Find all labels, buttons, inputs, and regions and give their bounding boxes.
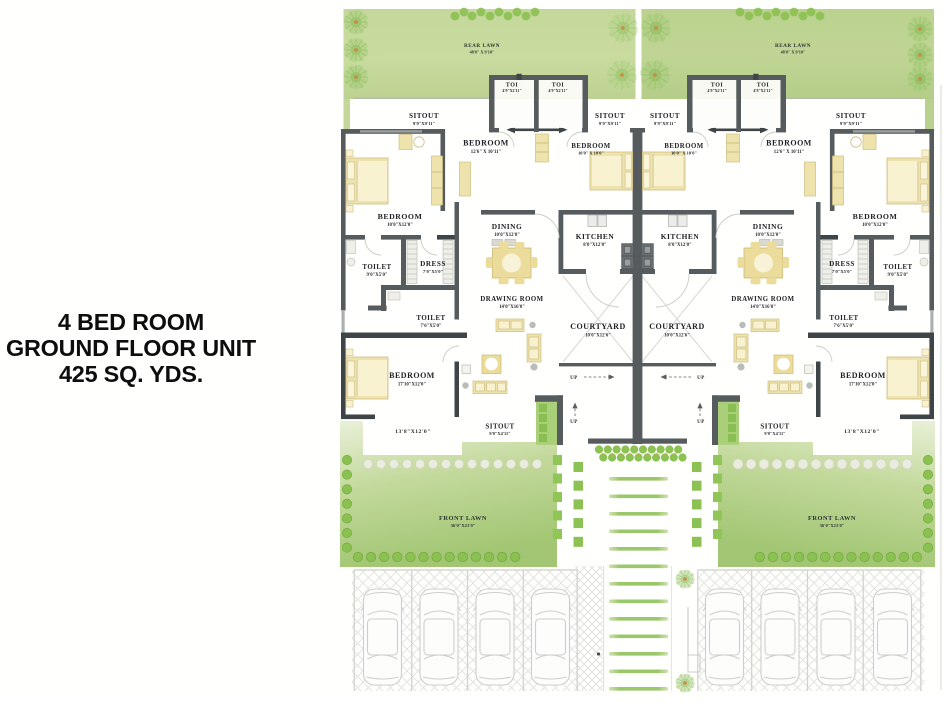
svg-text:DRESS: DRESS [420,260,446,268]
svg-text:10'0" X 10'0": 10'0" X 10'0" [671,151,697,156]
svg-text:GROUND FLOOR UNIT: GROUND FLOOR UNIT [6,335,257,361]
svg-text:SITOUT: SITOUT [595,112,625,120]
svg-text:7'0"X5'0": 7'0"X5'0" [423,269,444,274]
svg-text:TOILET: TOILET [362,264,391,271]
svg-text:48'0" X 9'10": 48'0" X 9'10" [781,50,806,55]
svg-text:48'0" X 9'10": 48'0" X 9'10" [470,50,495,55]
svg-text:REAR LAWN: REAR LAWN [464,43,500,49]
svg-text:13'8"X12'0": 13'8"X12'0" [395,429,431,435]
svg-text:BEDROOM: BEDROOM [853,212,898,221]
svg-text:TOILET: TOILET [883,264,912,271]
svg-text:14'0"X16'0": 14'0"X16'0" [750,305,776,310]
svg-text:BEDROOM: BEDROOM [389,371,435,380]
svg-text:DINING: DINING [753,222,784,231]
svg-text:KITCHEN: KITCHEN [661,232,700,241]
svg-text:17'10"X12'0": 17'10"X12'0" [398,382,427,387]
svg-text:9'0"X5'0": 9'0"X5'0" [887,273,908,278]
svg-text:8'0"X12'0": 8'0"X12'0" [583,243,607,248]
svg-text:10'0"X12'0": 10'0"X12'0" [755,233,781,238]
svg-text:10'0"X12'0": 10'0"X12'0" [387,223,413,228]
svg-text:9'0"X5'0": 9'0"X5'0" [366,273,387,278]
svg-text:13'8"X12'0": 13'8"X12'0" [844,429,880,435]
svg-text:12'6" X 10'11": 12'6" X 10'11" [471,150,502,155]
svg-text:KITCHEN: KITCHEN [576,232,615,241]
svg-text:7'0"X5'0": 7'0"X5'0" [832,269,853,274]
svg-text:BEDROOM: BEDROOM [664,143,703,150]
svg-text:TOILET: TOILET [829,315,858,322]
svg-text:4 BED ROOM: 4 BED ROOM [58,309,204,335]
svg-text:7'6"X5'0": 7'6"X5'0" [420,324,441,329]
svg-text:BEDROOM: BEDROOM [571,143,610,150]
svg-text:DRESS: DRESS [829,260,855,268]
svg-text:SITOUT: SITOUT [409,112,439,120]
svg-text:REAR LAWN: REAR LAWN [775,43,811,49]
svg-text:SITOUT: SITOUT [760,423,789,431]
svg-text:UP: UP [570,376,578,381]
svg-text:BEDROOM: BEDROOM [766,139,812,148]
svg-text:9'9"X9'11": 9'9"X9'11" [840,121,863,126]
svg-text:BEDROOM: BEDROOM [378,212,423,221]
svg-text:10'0"X12'0": 10'0"X12'0" [494,233,520,238]
svg-text:FRONT LAWN: FRONT LAWN [808,515,856,522]
svg-text:36'0"X21'0": 36'0"X21'0" [451,523,476,528]
svg-text:SITOUT: SITOUT [836,112,866,120]
svg-text:4'9"X2'11": 4'9"X2'11" [753,88,772,93]
svg-text:4'9"X2'11": 4'9"X2'11" [502,88,521,93]
svg-text:UP: UP [697,376,705,381]
svg-text:DINING: DINING [492,222,523,231]
svg-text:12'6" X 10'11": 12'6" X 10'11" [774,150,805,155]
svg-text:4'9"X2'11": 4'9"X2'11" [707,88,726,93]
svg-text:10'0"X12'6": 10'0"X12'6" [664,333,690,338]
svg-text:10'0"X12'0": 10'0"X12'0" [862,223,888,228]
svg-text:FRONT LAWN: FRONT LAWN [439,515,487,522]
svg-text:10'0"X12'6": 10'0"X12'6" [585,333,611,338]
svg-text:SITOUT: SITOUT [485,423,514,431]
svg-text:DRAWING ROOM: DRAWING ROOM [480,296,543,303]
svg-text:9'0"X4'11": 9'0"X4'11" [489,431,510,436]
svg-text:COURTYARD: COURTYARD [649,322,704,331]
svg-text:9'0"X4'11": 9'0"X4'11" [764,431,785,436]
svg-text:7'6"X5'0": 7'6"X5'0" [833,324,854,329]
svg-text:BEDROOM: BEDROOM [840,371,886,380]
svg-text:425 SQ. YDS.: 425 SQ. YDS. [59,361,203,387]
svg-text:9'9"X9'11": 9'9"X9'11" [654,121,677,126]
svg-text:4'9"X2'11": 4'9"X2'11" [548,88,567,93]
svg-text:17'10"X12'0": 17'10"X12'0" [849,382,878,387]
svg-text:14'0"X16'0": 14'0"X16'0" [499,305,525,310]
svg-text:8'0"X12'0": 8'0"X12'0" [668,243,692,248]
svg-text:10'0" X 10'0": 10'0" X 10'0" [578,151,604,156]
svg-text:UP: UP [697,420,705,425]
svg-text:DRAWING ROOM: DRAWING ROOM [731,296,794,303]
svg-text:9'9"X9'11": 9'9"X9'11" [413,121,436,126]
svg-text:COURTYARD: COURTYARD [570,322,625,331]
svg-text:SITOUT: SITOUT [650,112,680,120]
svg-text:TOILET: TOILET [416,315,445,322]
svg-text:9'9"X9'11": 9'9"X9'11" [599,121,622,126]
svg-text:BEDROOM: BEDROOM [463,139,509,148]
svg-text:36'0"X21'0": 36'0"X21'0" [820,523,845,528]
svg-text:UP: UP [570,420,578,425]
